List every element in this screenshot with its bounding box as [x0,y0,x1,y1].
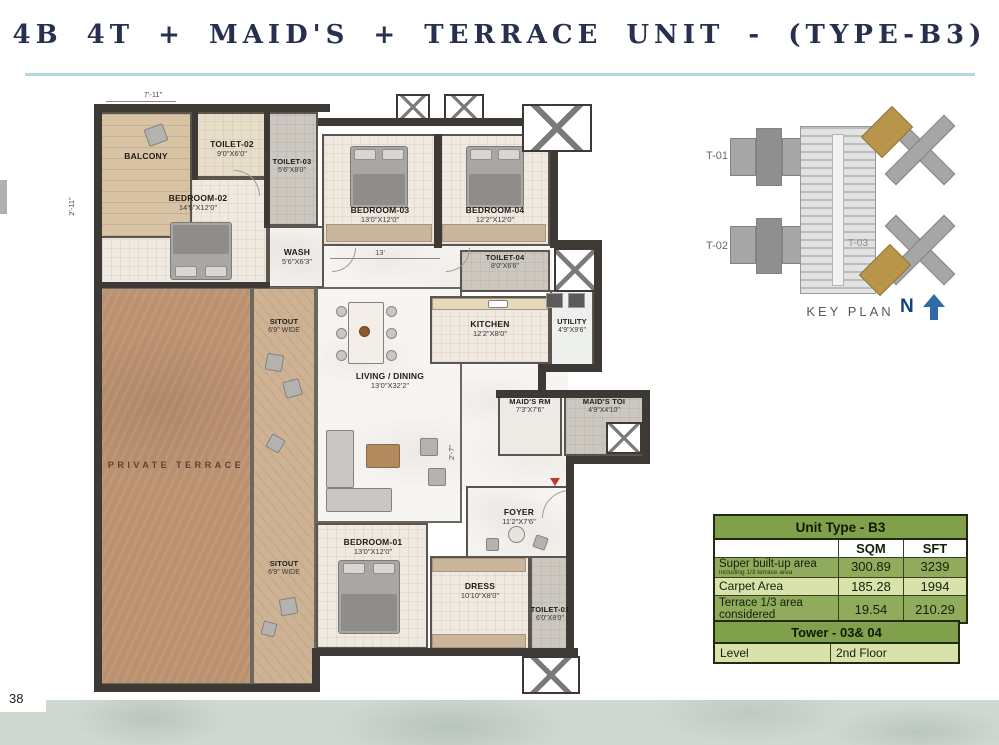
outdoor-chair [265,353,285,373]
wall [642,390,650,464]
washing-machine [546,293,563,308]
room-label-foyer: FOYER11'2"X7'6" [470,508,568,526]
dining-chair [336,306,347,317]
wall [572,456,650,464]
table-row: Super built-up area including 1/3 terrac… [715,558,966,578]
room-label-toilet02: TOILET-029'0"X6'0" [196,140,268,158]
bed [350,146,408,208]
footer-texture-band [0,700,999,745]
armchair [428,468,446,486]
dining-chair [336,328,347,339]
room-label-wash: WASH5'6"X6'3" [268,248,326,266]
wall [566,456,574,656]
level-label: Level [715,644,831,662]
brochure-page: 4B 4T + MAID'S + TERRACE UNIT - (TYPE-B3… [0,0,999,745]
dimension-label: 2'-7" [447,445,456,460]
wardrobe [432,558,526,572]
key-plan-building [756,128,782,186]
bed [466,146,524,208]
key-plan-tower2-label: T-02 [706,240,728,252]
sofa [326,430,354,488]
room-label-bedroom01: BEDROOM-0113'0"X12'0" [318,538,428,556]
room-label-maids-toi: MAID'S TOI4'9"X4'10" [566,398,642,415]
row-sft: 210.29 [904,596,966,622]
key-plan-tower3-label: T-03 [848,238,868,249]
room-label-toilet04: TOILET-048'0"X6'6" [462,254,548,271]
wall [538,364,602,372]
dining-chair [386,350,397,361]
row-label: Terrace 1/3 area considered [715,596,839,622]
unit-area-table: Unit Type - B3 SQM SFT Super built-up ar… [713,514,968,624]
key-plan-tower1-label: T-01 [706,150,728,162]
dimension-label: 2'-11" [67,197,76,216]
wardrobe [442,224,546,242]
north-label: N [900,296,914,318]
room-label-kitchen: KITCHEN12'2"X8'0" [432,320,548,338]
room-label-private-terrace: PRIVATE TERRACE [104,460,248,470]
north-arrow-icon [922,294,946,325]
sofa [326,488,392,512]
key-plan-caption: KEY PLAN [785,304,915,319]
row-sqm: 185.28 [839,578,904,596]
lift-shaft [554,248,596,292]
colheader-sqm: SQM [839,540,904,558]
wall [312,648,320,692]
level-value: 2nd Floor [831,644,958,662]
row-sft: 3239 [904,558,966,578]
shaft-crossed [522,656,580,694]
key-plan: T-01 T-02 T-03 KEY PLAN N [700,98,975,333]
dimension-line [106,101,176,102]
room-label-bedroom02: BEDROOM-0214'5"X12'0" [136,194,260,212]
wall [94,104,102,692]
row-sqm: 300.89 [839,558,904,578]
shaft-crossed [444,94,484,120]
foyer-table [508,526,525,543]
dining-chair [386,328,397,339]
edge-tab [0,180,7,214]
wall [434,134,442,248]
entrance-marker-icon [550,478,560,486]
coffee-table [366,444,400,468]
wardrobe [432,634,526,648]
row-sublabel: including 1/3 terrace area [719,570,834,576]
wall [312,648,578,656]
wardrobe [326,224,432,242]
room-label-dress: DRESS10'10"X8'0" [432,582,528,600]
shaft-crossed [396,94,430,120]
key-plan-building [730,226,756,264]
table-row: Carpet Area 185.28 1994 [715,578,966,596]
room-label-toilet01: TOILET-016'0"X8'0" [526,606,574,623]
room-label-sitout-lower: SITOUT6'9" WIDE [254,560,314,577]
tower-table-title: Tower - 03& 04 [715,622,958,644]
room-toilet01-floor [530,556,570,650]
room-label-living: LIVING / DINING13'0"X32'2" [318,372,462,390]
room-label-bedroom03: BEDROOM-0313'0"X12'0" [324,206,436,224]
armchair [420,438,438,456]
row-label: Carpet Area [715,578,839,596]
page-title: 4B 4T + MAID'S + TERRACE UNIT - (TYPE-B3… [0,20,999,50]
foyer-chair [486,538,499,551]
dining-chair [336,350,347,361]
washing-machine [568,293,585,308]
room-private-terrace-floor [100,287,252,685]
wall [94,282,270,288]
bed [170,222,232,280]
row-sft: 1994 [904,578,966,596]
room-label-sitout-upper: SITOUT6'9" WIDE [254,318,314,335]
colheader-blank [715,540,839,558]
room-label-balcony: BALCONY [102,152,190,162]
unit-area-table-title: Unit Type - B3 [715,516,966,540]
room-label-toilet03: TOILET-035'6"X8'0" [264,158,320,175]
outdoor-chair [279,597,299,617]
room-label-bedroom04: BEDROOM-0412'2"X12'0" [440,206,550,224]
kitchen-sink [488,300,508,308]
dining-chair [386,306,397,317]
colheader-sft: SFT [904,540,966,558]
header-divider [25,73,975,76]
key-plan-parking-lane [832,134,844,286]
unit-area-table-colheader-row: SQM SFT [715,540,966,558]
bed [338,560,400,634]
page-number: 38 [0,686,46,712]
tower-table: Tower - 03& 04 Level 2nd Floor [713,620,960,664]
shaft-crossed [606,422,642,454]
key-plan-building [756,218,782,274]
wall [94,104,330,112]
row-sqm: 19.54 [839,596,904,622]
room-label-maids-rm: MAID'S RM7'3"X7'6" [496,398,564,415]
key-plan-building [730,138,756,176]
stair-shaft [522,104,592,152]
room-label-utility: UTILITY4'9"X9'6" [546,318,598,335]
dimension-line [330,258,440,259]
wall [94,684,320,692]
dining-centerpiece [359,326,370,337]
dimension-label: 13' [360,248,400,257]
table-row: Terrace 1/3 area considered 19.54 210.29 [715,596,966,622]
dimension-label: 7'-11" [118,90,188,99]
table-row: Level 2nd Floor [715,644,958,662]
